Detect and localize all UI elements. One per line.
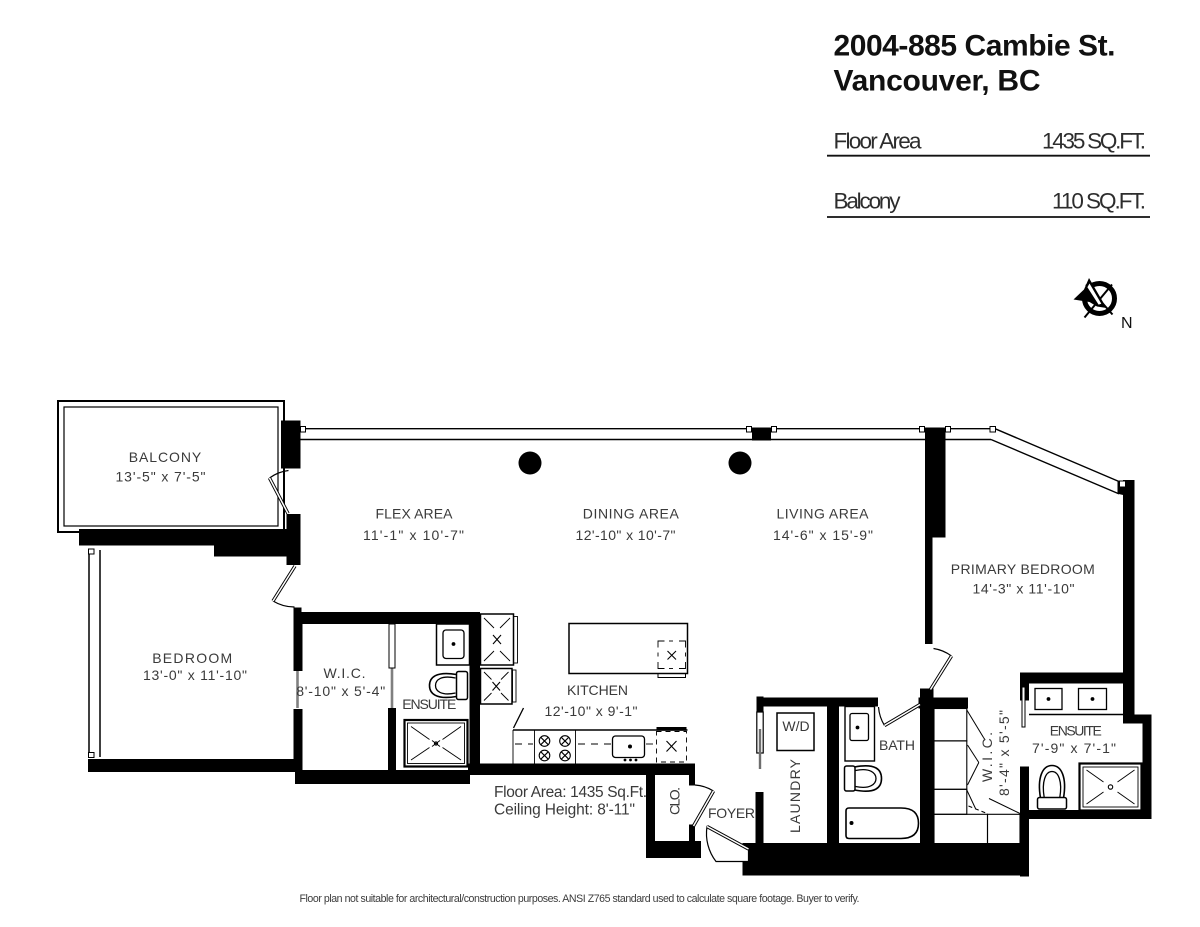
svg-text:Floor Area: Floor Area bbox=[834, 129, 922, 154]
svg-text:12'-10" x 9'-1": 12'-10" x 9'-1" bbox=[545, 703, 638, 719]
svg-text:LIVING AREA: LIVING AREA bbox=[777, 506, 870, 522]
svg-text:Ceiling Height: 8'-11": Ceiling Height: 8'-11" bbox=[494, 802, 635, 819]
svg-text:12'-10" x 10'-7": 12'-10" x 10'-7" bbox=[576, 527, 676, 543]
svg-text:N: N bbox=[1121, 315, 1133, 332]
svg-text:Vancouver, BC: Vancouver, BC bbox=[834, 65, 1041, 98]
svg-text:13'-5" x 7'-5": 13'-5" x 7'-5" bbox=[116, 469, 206, 485]
svg-text:110 SQ.FT.: 110 SQ.FT. bbox=[1052, 189, 1146, 214]
svg-text:8'-4" x 5'-5": 8'-4" x 5'-5" bbox=[996, 710, 1012, 796]
svg-text:14'-6" x 15'-9": 14'-6" x 15'-9" bbox=[773, 527, 873, 543]
svg-text:BEDROOM: BEDROOM bbox=[152, 650, 232, 666]
svg-text:KITCHEN: KITCHEN bbox=[567, 682, 628, 698]
svg-text:11'-1" x 10'-7": 11'-1" x 10'-7" bbox=[363, 527, 464, 543]
svg-text:1435 SQ.FT.: 1435 SQ.FT. bbox=[1042, 129, 1146, 154]
svg-text:FOYER: FOYER bbox=[708, 805, 755, 821]
svg-text:ENSUITE: ENSUITE bbox=[402, 696, 456, 712]
svg-text:W/D: W/D bbox=[782, 718, 809, 734]
svg-text:FLEX AREA: FLEX AREA bbox=[376, 506, 454, 522]
svg-text:PRIMARY BEDROOM: PRIMARY BEDROOM bbox=[951, 561, 1095, 577]
svg-text:CLO.: CLO. bbox=[667, 787, 683, 815]
svg-text:13'-0" x 11'-10": 13'-0" x 11'-10" bbox=[143, 667, 247, 683]
svg-text:7'-9" x 7'-1": 7'-9" x 7'-1" bbox=[1032, 740, 1116, 756]
svg-text:Floor plan not suitable for ar: Floor plan not suitable for architectura… bbox=[300, 893, 860, 905]
svg-text:8'-10" x 5'-4": 8'-10" x 5'-4" bbox=[296, 683, 385, 699]
svg-text:BALCONY: BALCONY bbox=[129, 449, 202, 465]
svg-text:DINING AREA: DINING AREA bbox=[583, 506, 680, 522]
svg-text:W.I.C.: W.I.C. bbox=[324, 665, 366, 681]
svg-text:BATH: BATH bbox=[879, 737, 915, 753]
svg-text:ENSUITE: ENSUITE bbox=[1050, 723, 1102, 739]
svg-text:Balcony: Balcony bbox=[834, 189, 902, 214]
svg-text:14'-3" x 11'-10": 14'-3" x 11'-10" bbox=[973, 581, 1075, 597]
svg-text:2004-885 Cambie St.: 2004-885 Cambie St. bbox=[834, 30, 1116, 63]
svg-text:Floor Area: 1435 Sq.Ft.: Floor Area: 1435 Sq.Ft. bbox=[494, 784, 647, 801]
